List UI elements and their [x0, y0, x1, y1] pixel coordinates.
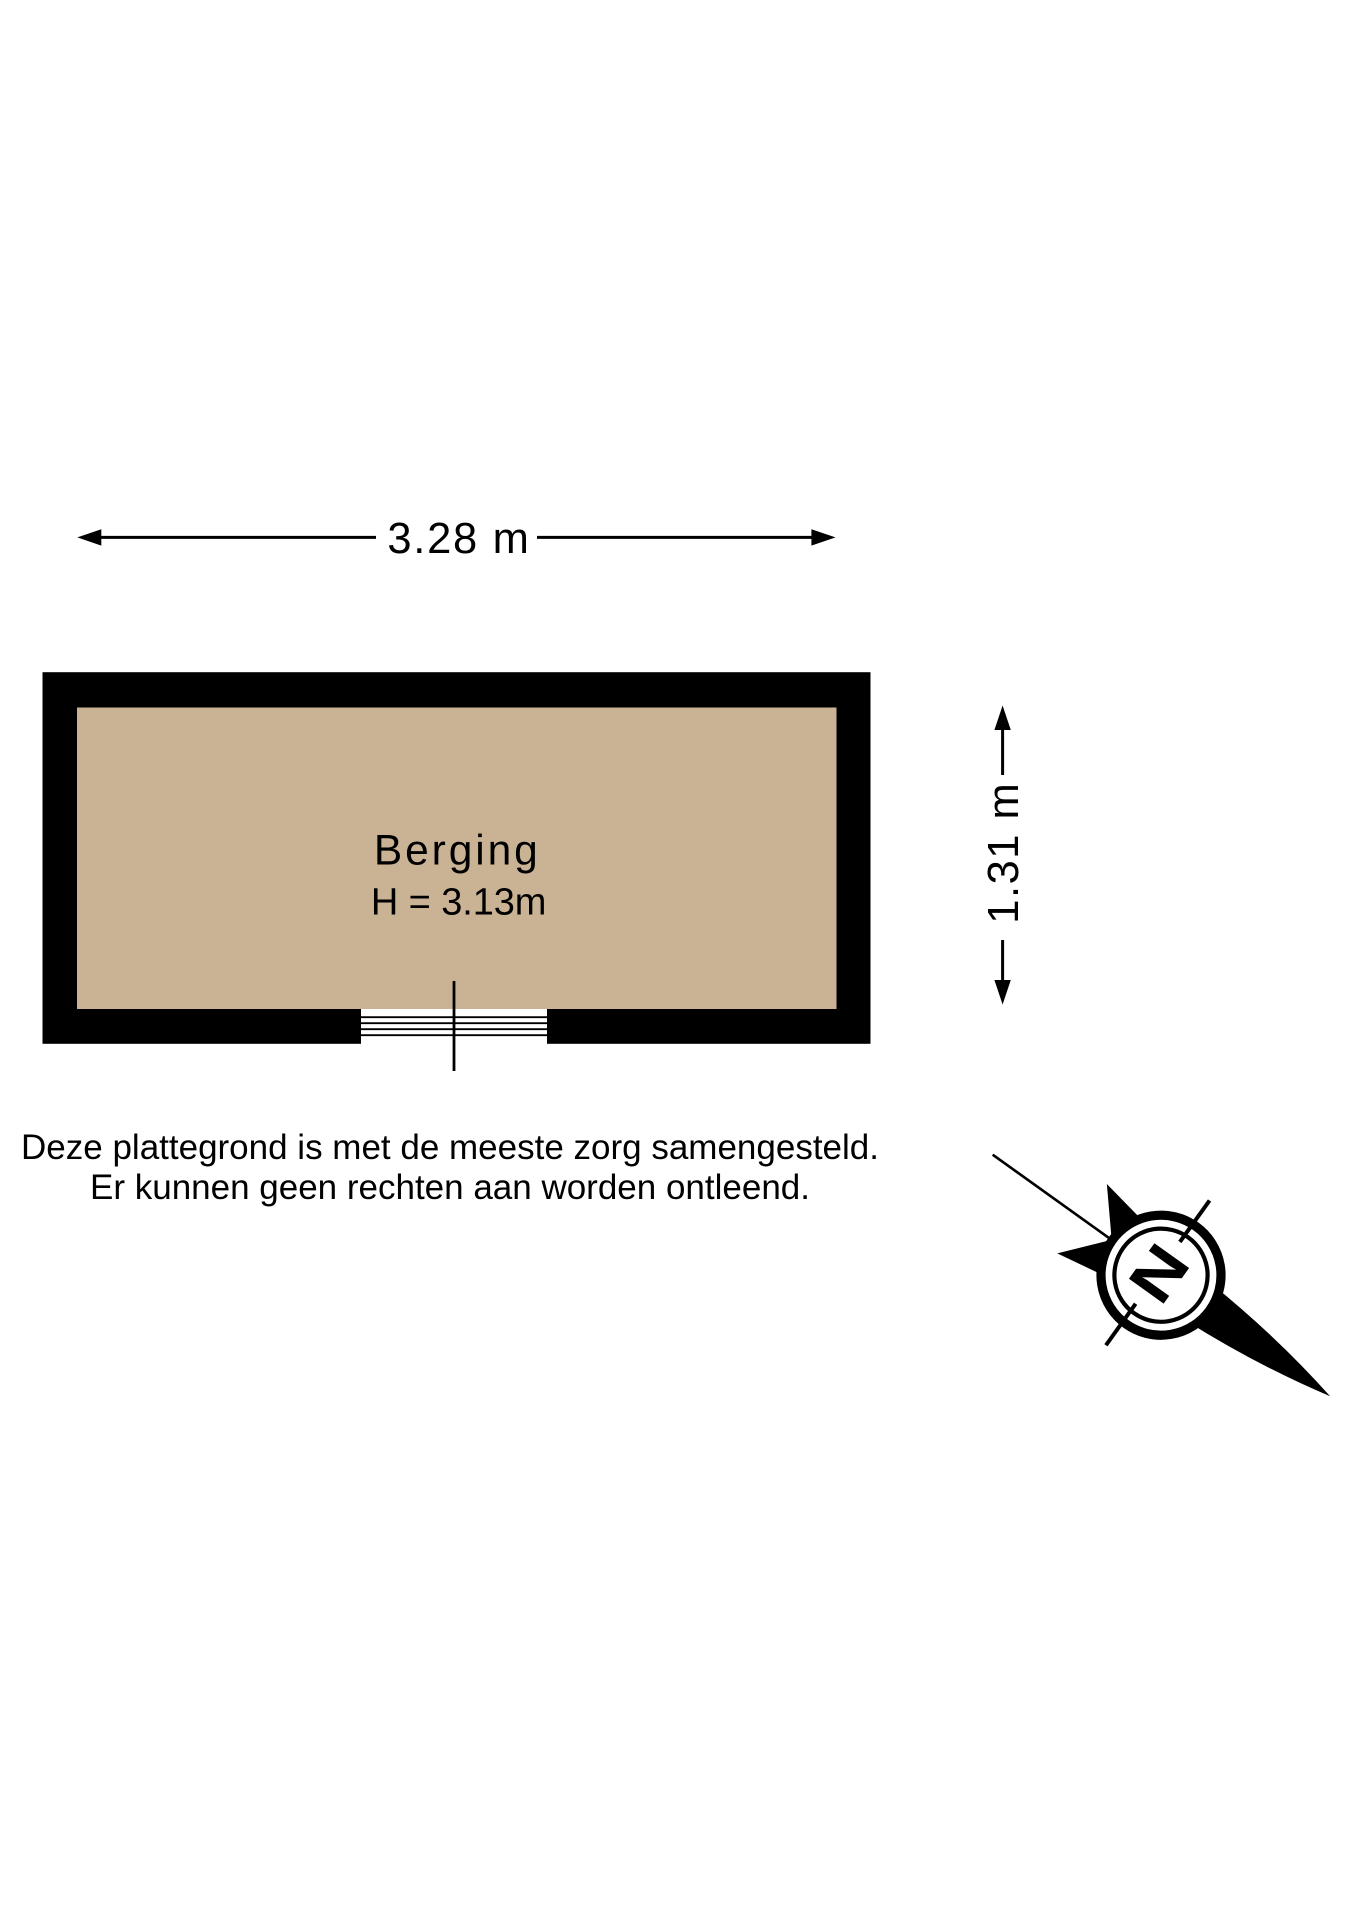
svg-text:H = 3.13m: H = 3.13m — [371, 881, 546, 923]
svg-text:Er kunnen geen rechten aan wor: Er kunnen geen rechten aan worden ontlee… — [90, 1168, 810, 1207]
svg-text:Berging: Berging — [374, 828, 541, 875]
svg-text:3.28 m: 3.28 m — [387, 515, 530, 563]
svg-text:Deze plattegrond is met de mee: Deze plattegrond is met de meeste zorg s… — [21, 1128, 879, 1167]
svg-text:1.31 m: 1.31 m — [980, 782, 1028, 924]
